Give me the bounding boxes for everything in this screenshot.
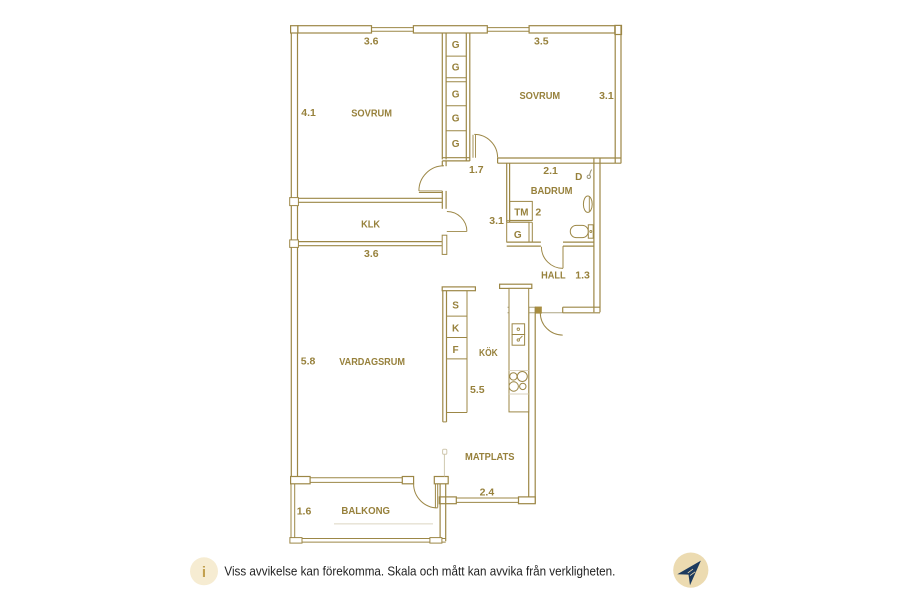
svg-text:G: G — [452, 63, 460, 74]
svg-text:4.1: 4.1 — [301, 107, 316, 119]
svg-text:5.5: 5.5 — [470, 384, 485, 396]
svg-text:2.4: 2.4 — [480, 486, 495, 498]
svg-text:G: G — [452, 139, 460, 150]
svg-text:3.5: 3.5 — [534, 35, 549, 47]
svg-text:2: 2 — [535, 206, 541, 218]
svg-text:BADRUM: BADRUM — [531, 186, 573, 197]
svg-text:K: K — [452, 324, 460, 335]
svg-text:BALKONG: BALKONG — [341, 506, 390, 517]
svg-text:SOVRUM: SOVRUM — [351, 108, 392, 119]
svg-text:VARDAGSRUM: VARDAGSRUM — [339, 357, 405, 368]
svg-text:SOVRUM: SOVRUM — [519, 91, 560, 102]
svg-text:HALL: HALL — [541, 271, 566, 282]
svg-text:MATPLATS: MATPLATS — [465, 452, 515, 463]
svg-text:TM: TM — [514, 208, 528, 219]
svg-text:S: S — [452, 300, 459, 311]
svg-text:3.1: 3.1 — [599, 90, 614, 102]
svg-text:1.7: 1.7 — [469, 164, 484, 176]
svg-text:5.8: 5.8 — [301, 356, 316, 368]
svg-text:KLK: KLK — [361, 220, 381, 231]
svg-text:G: G — [452, 90, 460, 101]
svg-text:G: G — [514, 230, 522, 241]
svg-text:3.6: 3.6 — [364, 248, 379, 260]
svg-text:G: G — [452, 114, 460, 125]
svg-text:3.6: 3.6 — [364, 35, 379, 47]
svg-text:2.1: 2.1 — [543, 165, 558, 177]
svg-text:Viss avvikelse kan förekomma.: Viss avvikelse kan förekomma. Skala och … — [224, 564, 615, 579]
svg-text:D: D — [575, 172, 582, 183]
svg-text:KÖK: KÖK — [479, 346, 498, 359]
svg-text:i: i — [202, 564, 206, 581]
svg-text:F: F — [453, 345, 459, 356]
svg-text:3.1: 3.1 — [489, 215, 504, 227]
svg-text:1.3: 1.3 — [575, 270, 590, 282]
svg-text:G: G — [452, 40, 460, 51]
svg-text:1.6: 1.6 — [297, 506, 312, 518]
